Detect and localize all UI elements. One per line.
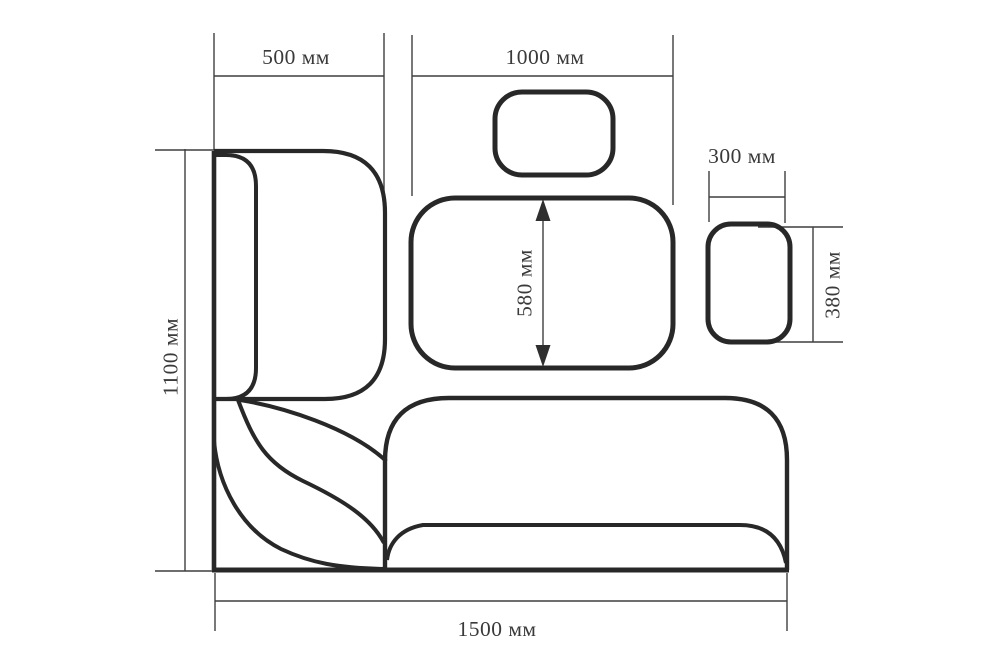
dimension-1100-height: 1100 мм xyxy=(155,149,214,571)
back-cushion-panel xyxy=(411,198,673,368)
sofa-outline xyxy=(212,151,789,570)
dimension-1500-length: 1500 мм xyxy=(215,573,787,641)
dim-label-1500: 1500 мм xyxy=(457,617,536,641)
left-backrest-cushion xyxy=(214,155,256,399)
dimension-500-width: 500 мм xyxy=(214,33,384,207)
dim-label-580: 580 мм xyxy=(513,249,537,317)
dimension-1000-width: 1000 мм xyxy=(412,35,673,205)
arrow-down-icon xyxy=(536,345,551,367)
dimension-380-height: 380 мм xyxy=(758,227,845,342)
dim-label-380: 380 мм xyxy=(821,251,845,319)
dim-label-500: 500 мм xyxy=(262,45,330,69)
right-seat-outer xyxy=(385,398,787,570)
dimension-580-height: 580 мм xyxy=(513,199,551,367)
side-cushion xyxy=(708,224,790,342)
dimension-300-width: 300 мм xyxy=(708,144,785,223)
cushions xyxy=(411,92,790,368)
dim-label-300: 300 мм xyxy=(708,144,776,168)
drawing-canvas: 500 мм 1000 мм 300 мм 380 мм 1100 мм xyxy=(0,0,1000,666)
dim-label-1100: 1100 мм xyxy=(159,318,183,396)
arrow-up-icon xyxy=(536,199,551,221)
right-seat-cushion xyxy=(387,525,786,563)
corner-seam-middle xyxy=(238,400,384,543)
left-backrest-outer xyxy=(214,151,385,399)
sofa-dimension-drawing: 500 мм 1000 мм 300 мм 380 мм 1100 мм xyxy=(0,0,1000,666)
corner-seam-outer xyxy=(214,441,384,569)
dim-label-1000: 1000 мм xyxy=(505,45,584,69)
headrest-pillow xyxy=(495,92,613,175)
